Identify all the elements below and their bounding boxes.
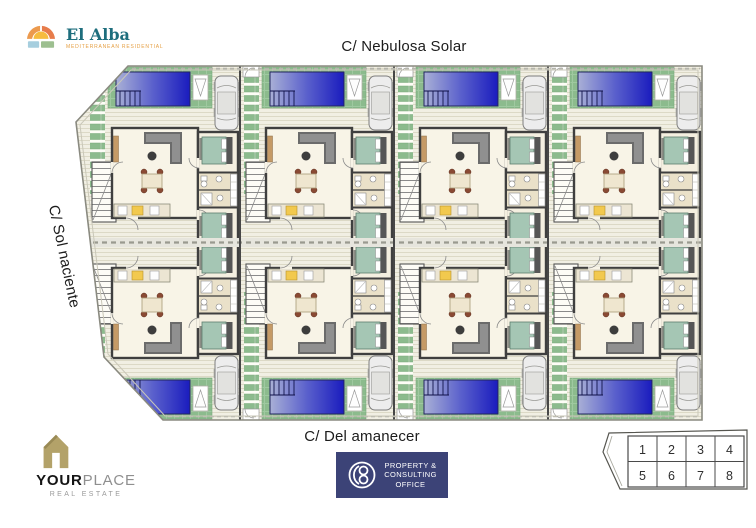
unit-plot-3 bbox=[397, 66, 548, 243]
key-plan-cell: 6 bbox=[668, 469, 675, 483]
unit-plot-7 bbox=[397, 243, 548, 420]
consulting-office-line1: PROPERTY & bbox=[384, 461, 437, 471]
unit-plot-1 bbox=[89, 66, 240, 243]
key-plan-cell: 3 bbox=[697, 443, 704, 457]
el-alba-name: El Alba bbox=[66, 26, 164, 43]
unit-plot-4 bbox=[551, 66, 702, 243]
key-plan-cell: 4 bbox=[726, 443, 733, 457]
yourplace-subtitle: REAL ESTATE bbox=[34, 491, 138, 498]
consulting-office-line2: CONSULTING bbox=[384, 470, 437, 480]
yourplace-logo: YOURPLACE REAL ESTATE bbox=[34, 430, 138, 498]
el-alba-logo: El Alba MEDITERRANEAN RESIDENTIAL bbox=[22, 24, 164, 52]
house-icon bbox=[34, 430, 76, 470]
consulting-office-monogram-icon bbox=[347, 460, 377, 490]
unit-plot-6 bbox=[243, 243, 394, 420]
consulting-office-text: PROPERTY & CONSULTING OFFICE bbox=[384, 461, 437, 490]
street-label-bottom: C/ Del amanecer bbox=[262, 428, 462, 445]
consulting-office-line3: OFFICE bbox=[384, 480, 437, 490]
unit-plot-5 bbox=[89, 243, 240, 420]
key-plan-cell: 2 bbox=[668, 443, 675, 457]
key-plan: 1 2 3 4 5 6 7 8 bbox=[603, 430, 747, 489]
site-plan-page: 1 2 3 4 5 6 7 8 C/ Nebulosa Solar C/ Sol… bbox=[0, 0, 756, 528]
key-plan-cell: 5 bbox=[639, 469, 646, 483]
key-plan-cell: 1 bbox=[639, 443, 646, 457]
unit-plot-8 bbox=[551, 243, 702, 420]
consulting-office-badge: PROPERTY & CONSULTING OFFICE bbox=[336, 452, 448, 498]
yourplace-name-bold: YOUR bbox=[36, 472, 83, 489]
yourplace-name-light: PLACE bbox=[83, 472, 136, 489]
key-plan-cell: 7 bbox=[697, 469, 704, 483]
unit-plot-2 bbox=[243, 66, 394, 243]
street-label-top: C/ Nebulosa Solar bbox=[304, 38, 504, 55]
el-alba-tagline: MEDITERRANEAN RESIDENTIAL bbox=[66, 44, 164, 50]
yourplace-name: YOURPLACE bbox=[34, 472, 138, 489]
key-plan-cell: 8 bbox=[726, 469, 733, 483]
el-alba-sun-icon bbox=[22, 24, 60, 52]
